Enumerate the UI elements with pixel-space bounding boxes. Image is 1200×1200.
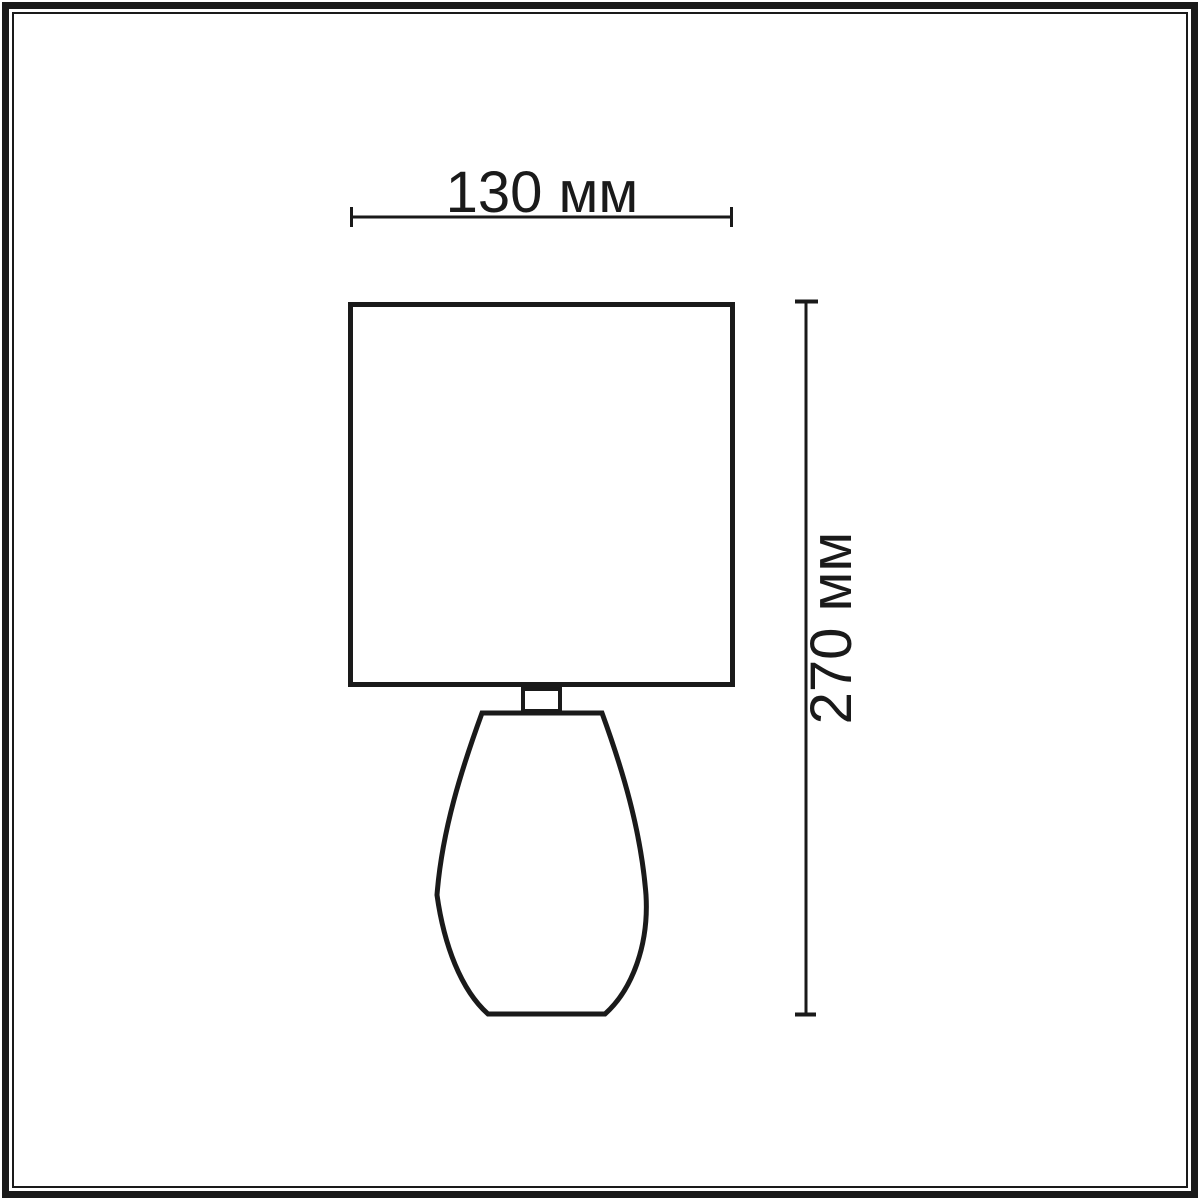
- lamp-base-outline: [437, 713, 646, 1014]
- lamp-neck-outline: [523, 689, 560, 711]
- lamp-dimension-diagram: 130 мм 270 мм: [0, 0, 1200, 1200]
- lampshade-outline: [351, 305, 733, 685]
- dimension-drawing-page: 130 мм 270 мм: [0, 0, 1200, 1200]
- height-dimension-label: 270 мм: [799, 532, 864, 725]
- width-dimension-label: 130 мм: [446, 160, 639, 225]
